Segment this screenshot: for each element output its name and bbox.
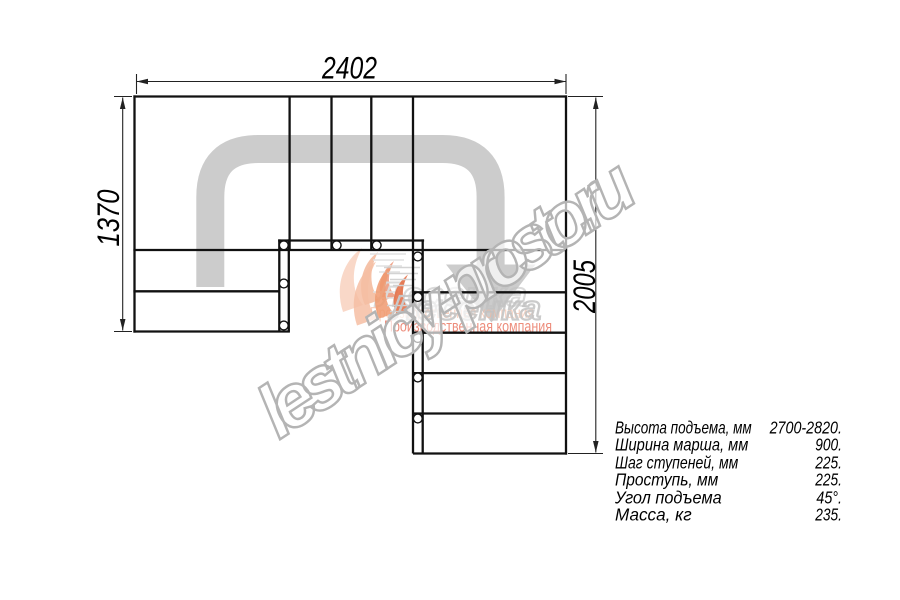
svg-text:Масса, кг: Масса, кг <box>615 505 692 525</box>
svg-text:1370: 1370 <box>90 189 126 246</box>
svg-text:235.: 235. <box>815 505 842 525</box>
svg-text:2402: 2402 <box>321 50 377 86</box>
svg-text:2005: 2005 <box>566 260 602 314</box>
